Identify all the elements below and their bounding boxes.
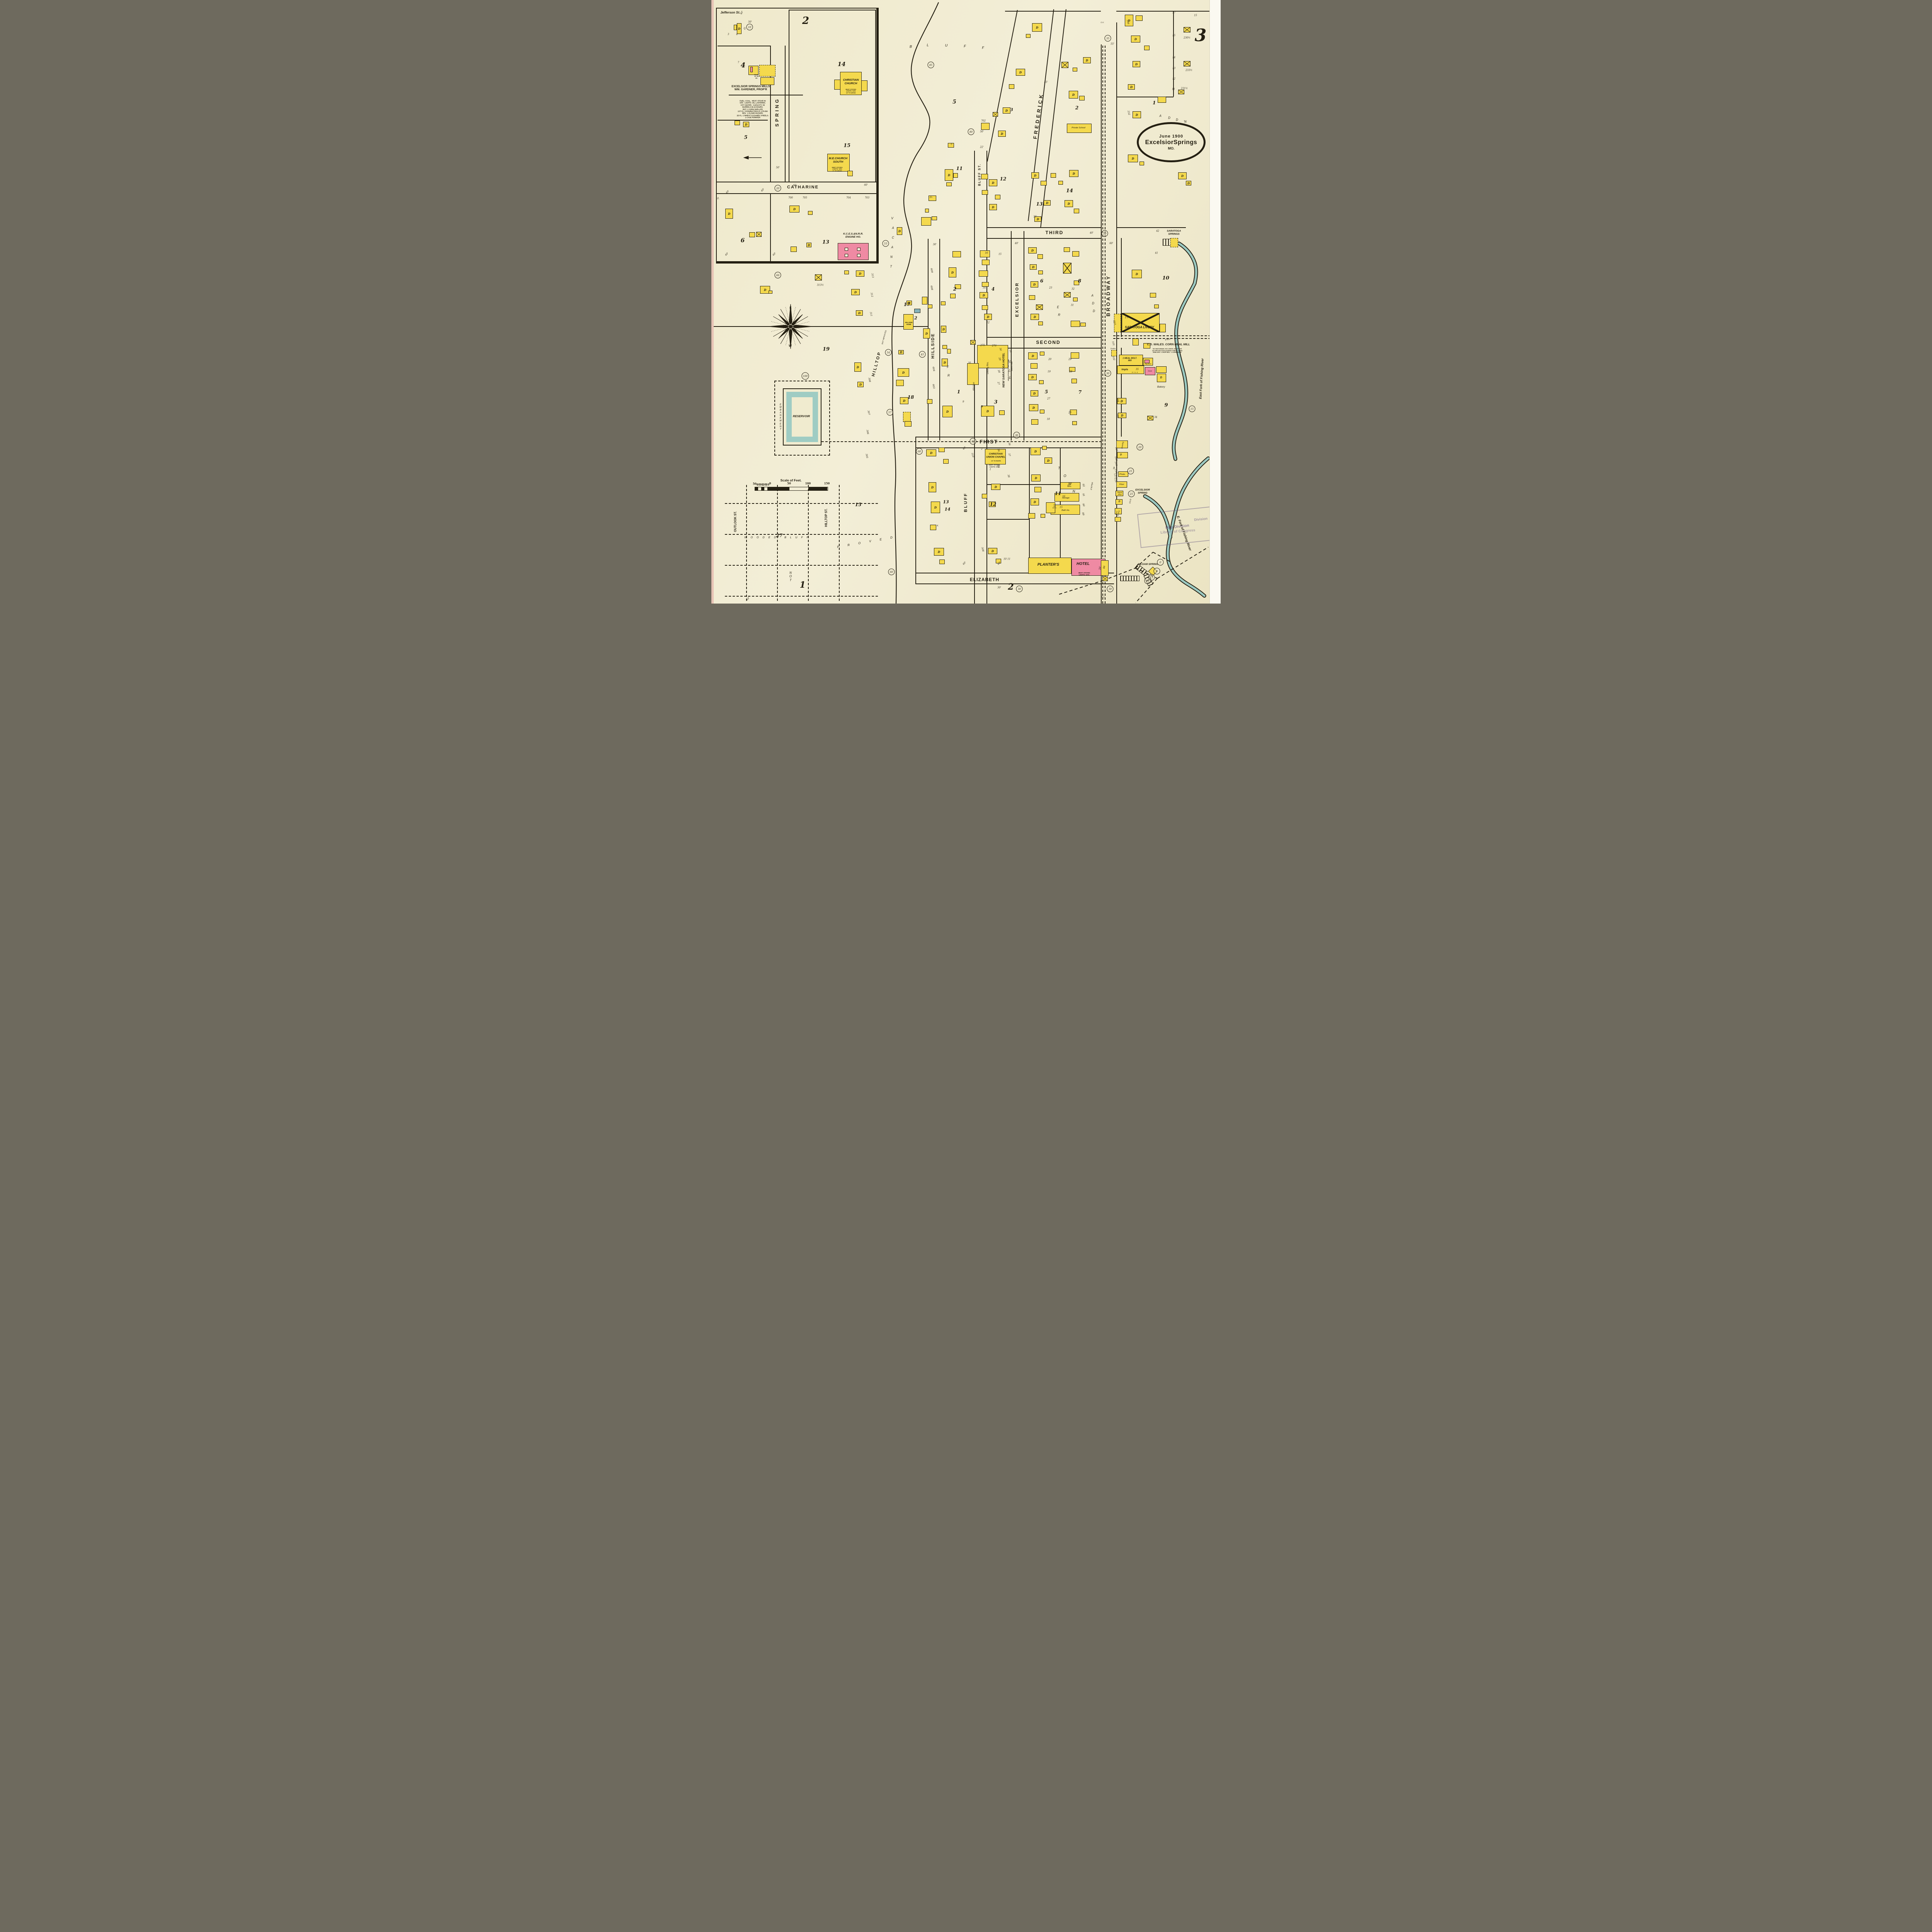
building	[1170, 238, 1178, 247]
map-label: O	[1063, 474, 1066, 478]
building: D	[988, 548, 997, 554]
street-line	[785, 46, 786, 182]
building	[1041, 514, 1045, 518]
circled-number: 0	[1157, 559, 1164, 566]
lot-number: 1½	[1125, 316, 1129, 319]
label-hotel: HOTEL	[1077, 562, 1090, 566]
building-label: D	[992, 182, 994, 184]
label-corn-meal-mill: C.D. WALES. CORN MEAL MILL	[1147, 343, 1190, 347]
building	[982, 494, 987, 498]
building-label: D	[1032, 355, 1034, 357]
label-saratoga-livery: SARATOGA LIVERY	[1125, 325, 1154, 329]
lot-number: 13	[1172, 67, 1175, 70]
building	[947, 349, 951, 354]
block-number: 11	[1055, 491, 1061, 496]
building	[1178, 90, 1184, 94]
label-engine-house: K.C.E.S.&N.R.R. ENGINE HO.	[843, 233, 863, 239]
building	[1136, 15, 1143, 21]
circled-number: 20	[1137, 444, 1143, 451]
building-label: D	[1034, 174, 1036, 177]
map-label: Bath Ho.	[1061, 509, 1070, 512]
building	[953, 173, 958, 178]
lot-number: 702	[981, 120, 986, 122]
building	[1026, 34, 1031, 38]
lot-number: 1	[990, 468, 991, 471]
block-number: 6	[741, 237, 745, 244]
building	[932, 216, 937, 220]
building	[1072, 421, 1077, 425]
street-third: THIRD	[1046, 230, 1064, 235]
lot-number: 15	[998, 253, 1002, 256]
building	[927, 399, 932, 404]
street-line	[986, 337, 1101, 338]
building	[1144, 46, 1150, 50]
label-me-church-south: M.E.CHURCH SOUTH	[829, 157, 847, 164]
building	[1115, 517, 1121, 522]
building: D	[856, 310, 863, 316]
map-label: T	[890, 265, 892, 268]
building	[1150, 293, 1156, 298]
building	[1156, 366, 1167, 373]
map-label: O.H.	[1100, 21, 1104, 23]
map-label: F	[982, 46, 984, 50]
lot-number: 705	[803, 197, 807, 199]
building-label: D	[930, 452, 932, 454]
lot-number: 17	[1172, 12, 1175, 14]
building	[995, 195, 1000, 199]
pipe-dashed-line	[783, 441, 1102, 442]
circled-number: 30	[1016, 586, 1023, 592]
map-label: O.H.	[1101, 596, 1105, 598]
map-label: D	[1168, 116, 1170, 119]
block-number: 12	[1000, 176, 1007, 182]
building	[791, 247, 797, 252]
block-number: 4	[741, 61, 746, 70]
lot-number: 15	[1060, 506, 1063, 509]
map-label: IR.CH. 30' AB RF.	[754, 74, 759, 79]
building	[905, 421, 912, 427]
pipe-dashed-line	[725, 565, 878, 566]
street-first: FIRST	[980, 439, 998, 444]
pipe-dashed-line	[839, 485, 840, 601]
lot-number: 9	[963, 401, 964, 403]
circled-number: 35	[1105, 35, 1111, 42]
pipe-dashed-line	[1105, 46, 1105, 604]
label-christian-union-chapel: CHRISTIAN UNION CHAPEL	[986, 452, 1005, 458]
building	[982, 260, 990, 265]
circled-number: 85	[928, 62, 934, 68]
building-label: D	[764, 289, 766, 291]
compass-west: W	[789, 344, 792, 347]
block-number: 13	[822, 240, 829, 245]
scale-bar	[755, 487, 828, 491]
building	[1042, 446, 1047, 450]
block-number: 8	[1078, 278, 1081, 284]
block-number: 10	[1162, 276, 1169, 281]
building	[1051, 173, 1056, 178]
building	[1031, 363, 1037, 369]
lot-number: 55'	[1111, 43, 1114, 46]
street-broadway: BROADWAY	[1105, 275, 1111, 316]
lot-number: 60'	[793, 184, 797, 187]
street-line	[716, 193, 878, 194]
lot-number: 0.	[717, 197, 719, 200]
building: D	[1083, 57, 1091, 63]
circled-number: 10	[747, 24, 753, 31]
street-line	[789, 10, 789, 182]
building: D	[1031, 447, 1041, 455]
building-label: D	[1032, 406, 1035, 409]
building	[939, 447, 945, 452]
map-label: K.	[937, 525, 939, 527]
lot-number: 50'	[776, 167, 780, 169]
lot-number: 86	[1103, 566, 1106, 569]
building-label: D	[1135, 63, 1138, 66]
building	[950, 294, 956, 298]
building	[1117, 366, 1144, 374]
building	[750, 67, 753, 72]
label-reservoir: RESERVOIR	[793, 415, 810, 418]
building-label: D	[1035, 477, 1037, 480]
building	[982, 282, 989, 287]
street-hilltop-st: HILLTOP ST.	[824, 509, 828, 527]
building	[1102, 577, 1108, 581]
map-label: Scales.	[1111, 347, 1116, 349]
building	[749, 232, 755, 237]
lot-number: 4	[736, 33, 738, 36]
block-number: 2	[1075, 105, 1078, 111]
circled-number: 80	[968, 129, 975, 135]
building: D	[923, 328, 930, 338]
block-number: 3	[1010, 107, 1013, 112]
building-label: D	[1036, 26, 1038, 29]
map-label: A	[1159, 114, 1161, 117]
street-line	[1116, 11, 1210, 12]
building: D	[1028, 352, 1037, 359]
lot-number: 14	[983, 287, 986, 289]
building-label: D	[1001, 133, 1003, 135]
building	[1071, 352, 1079, 359]
lot-number: 20	[1048, 358, 1051, 361]
building	[1038, 321, 1043, 325]
building	[844, 270, 849, 274]
building	[1037, 254, 1043, 259]
lot-number: 16	[985, 252, 988, 255]
block-number: 12	[990, 502, 997, 507]
building	[939, 560, 945, 564]
building-label: D	[944, 361, 946, 364]
building-label: D	[925, 332, 928, 335]
lot-number: 2	[981, 448, 983, 451]
lot-number: 17	[1067, 485, 1070, 487]
street-line	[1101, 44, 1102, 604]
lot-number: 35'	[1033, 216, 1037, 218]
building-label: D	[934, 506, 937, 509]
building: D	[1031, 172, 1039, 179]
block-number: 2	[953, 286, 956, 292]
scale-tick: 0	[769, 482, 771, 485]
building-label: D	[1187, 182, 1190, 185]
building	[922, 297, 927, 304]
map-label: E	[1057, 305, 1059, 309]
building-label: D	[1073, 172, 1075, 175]
north-arrow	[744, 156, 762, 159]
circled-number: 36	[1014, 432, 1020, 439]
lot-number: 700	[788, 197, 793, 199]
building-label: D	[1136, 273, 1138, 276]
building: D	[898, 368, 909, 377]
block-number: 11	[956, 166, 963, 171]
map-label: B	[910, 45, 912, 49]
building	[808, 211, 813, 215]
building-label: D	[738, 27, 740, 30]
label-new-saratoga-hotel: NEW SARATOGA HOTEL	[1002, 353, 1006, 388]
circled-number: 30	[1107, 586, 1114, 592]
building	[1073, 68, 1077, 71]
lot-number: 50'	[980, 131, 984, 133]
building	[815, 274, 822, 281]
building-label: D	[942, 328, 945, 331]
map-label: R	[947, 374, 950, 377]
street-line	[939, 239, 940, 440]
building	[1147, 416, 1153, 420]
street-jefferson: Jefferson St.	[720, 10, 740, 14]
scale-tick: 100	[805, 482, 811, 485]
lot-number: 32	[1071, 288, 1075, 291]
building: D	[991, 484, 1000, 490]
street-spring: SPRING	[774, 97, 780, 127]
map-label: TUB FOR BATHS	[1053, 504, 1056, 509]
building-label: D	[987, 316, 989, 318]
pipe-dashed-line	[777, 485, 778, 601]
building	[914, 309, 920, 313]
street-line	[716, 8, 717, 262]
building	[1039, 380, 1044, 384]
block-number: 7	[1078, 389, 1082, 395]
building	[1034, 487, 1041, 492]
building	[967, 363, 979, 385]
map-label: 13' TO EAVES.	[991, 460, 1001, 462]
lot-number: 31	[1071, 304, 1074, 307]
title-date: June 1900	[1159, 134, 1183, 139]
building-label: D	[1034, 450, 1037, 453]
street-hillside: HILLSIDE	[931, 333, 936, 359]
map-label: HEAT: STOVES. LIGHTS: GAS. 17' TO EAVES.	[832, 167, 843, 172]
scale-tick: 50	[787, 482, 791, 485]
building-label: D	[745, 123, 747, 126]
map-label: D'r.	[930, 197, 932, 199]
building-label: D	[1046, 202, 1048, 204]
street-bluff-st: BLUFF ST.	[978, 163, 981, 186]
building-label: D	[938, 551, 940, 553]
building: D	[981, 406, 994, 417]
street-line	[718, 120, 768, 121]
map-label: A	[1091, 294, 1093, 297]
street-excelsior: EXCELSIOR	[1015, 282, 1020, 317]
building	[970, 340, 976, 345]
building-label: D	[1031, 376, 1034, 379]
block-number: 9	[1164, 403, 1168, 408]
block-number: 18	[908, 395, 914, 400]
pipe-dashed-line	[808, 485, 809, 601]
street-line	[1173, 11, 1174, 97]
lot-number: 12	[986, 321, 990, 324]
building: D	[1133, 111, 1141, 118]
building	[845, 248, 848, 251]
building: D	[1178, 172, 1187, 179]
building-label: D	[983, 294, 985, 297]
building-label: D	[1068, 202, 1070, 205]
street-outlook: OUTLOOK ST.	[733, 511, 737, 532]
building: D	[743, 122, 749, 127]
lot-number: 29	[1068, 358, 1071, 361]
building: D	[1132, 270, 1142, 278]
label-planters: PLANTER'S	[1037, 563, 1059, 567]
building	[993, 112, 998, 117]
building	[1061, 62, 1068, 68]
map-label: C.	[951, 144, 953, 146]
building-label: D	[898, 230, 901, 233]
building: D	[1028, 247, 1037, 253]
building	[982, 305, 988, 310]
building	[1079, 96, 1085, 100]
circled-number: 66	[775, 272, 781, 279]
building-label: D	[1034, 316, 1036, 318]
building-label: D	[793, 208, 796, 211]
building	[1133, 338, 1139, 345]
building	[1080, 323, 1086, 327]
pipe-dashed-line	[746, 485, 747, 601]
building	[1038, 270, 1043, 274]
building: D	[1031, 390, 1038, 396]
label-embankment: E M B A N K M E N T	[780, 404, 782, 431]
building: D	[789, 206, 799, 213]
building: D	[1128, 84, 1135, 90]
street-line	[876, 8, 879, 264]
building-label: D	[1019, 71, 1022, 74]
street-line	[1029, 447, 1030, 573]
building: D	[998, 131, 1006, 137]
building-label: D	[728, 213, 730, 215]
block-number: 9	[981, 405, 983, 408]
building	[1040, 410, 1044, 413]
building-label: D	[1034, 501, 1036, 503]
building: D	[851, 289, 860, 295]
building	[999, 410, 1005, 415]
block-number: 5	[744, 135, 747, 141]
lot-number: 60'	[864, 184, 868, 187]
map-label: D	[1120, 454, 1122, 456]
label-bakery: Bakery	[1157, 386, 1165, 389]
building: D	[1030, 264, 1037, 270]
building-label: D	[854, 291, 857, 294]
building: D	[1028, 374, 1037, 380]
street-line	[915, 583, 1114, 584]
building	[930, 525, 936, 530]
block-number: 6	[1040, 278, 1043, 284]
building	[1154, 304, 1159, 308]
building-label: D	[1005, 109, 1008, 112]
map-label: C	[892, 236, 894, 239]
label-mills-note: FUEL: COAL. HEAT: STOVE IN OFF. LIGHTS: …	[737, 100, 769, 119]
map-label: HEAT: STOVES LIGHTS: GAS.	[1078, 572, 1090, 576]
block-number: 1	[957, 389, 960, 395]
building	[928, 304, 932, 308]
map-label: Flour	[1119, 483, 1124, 486]
building: D	[725, 209, 733, 219]
building	[921, 217, 931, 226]
building: D	[1003, 107, 1010, 114]
building: D	[1069, 170, 1078, 177]
building-label: D	[1032, 266, 1034, 269]
map-label: F	[964, 44, 966, 49]
street-line	[986, 519, 1029, 520]
lot-number: 703	[865, 197, 869, 199]
building: D	[1044, 200, 1051, 206]
railroad-bridge-hatch	[1120, 576, 1139, 581]
building: D	[1065, 200, 1073, 207]
building: D	[1016, 69, 1025, 76]
map-label: N O T	[789, 571, 792, 582]
building-label: D	[951, 271, 954, 274]
building-label: D	[808, 244, 810, 247]
map-label: Repair Shop	[1117, 492, 1122, 496]
street-elizabeth: ELIZABETH	[970, 577, 999, 582]
building	[1184, 27, 1190, 32]
map-label: A	[892, 226, 894, 230]
block-number: 1	[799, 580, 805, 590]
lot-number: 28	[1069, 371, 1072, 373]
lot-number: 15	[1194, 14, 1197, 17]
building-label: D	[859, 272, 861, 275]
map-label: 'N	[1184, 120, 1186, 123]
map-label: V	[891, 216, 893, 220]
map-label: LIGHTS: GAS	[1011, 362, 1013, 371]
lot-number: 11	[1172, 88, 1175, 91]
building: D	[857, 382, 864, 387]
building	[1064, 292, 1071, 298]
building: D	[989, 179, 997, 186]
building	[1073, 298, 1078, 301]
building	[1063, 263, 1071, 274]
building: D	[942, 406, 952, 417]
building-label: D	[986, 410, 989, 413]
building: D	[1031, 498, 1039, 505]
building	[896, 380, 904, 386]
building-label: D	[1047, 459, 1049, 462]
building-label: D	[859, 383, 862, 386]
lot-number: 30'	[997, 587, 1001, 589]
building-label: D	[995, 486, 997, 488]
street-line	[928, 239, 929, 440]
lot-number: 34	[1154, 416, 1157, 419]
building	[1117, 452, 1128, 458]
pipe-dashed-line	[1102, 46, 1103, 604]
building-label: D	[1037, 218, 1039, 221]
map-label: Impls	[1122, 368, 1128, 371]
compass-east: E	[789, 306, 791, 310]
building-label: D	[948, 174, 950, 177]
lot-number: 275	[980, 344, 985, 347]
building: D	[1031, 281, 1038, 287]
map-label: 1 MEAL BOLT. Mill	[1122, 357, 1137, 362]
block-number: 5	[1045, 389, 1048, 395]
building: D	[1186, 181, 1191, 185]
building	[1074, 209, 1079, 213]
block-number: 14	[944, 507, 950, 512]
building-label: D	[1033, 283, 1036, 286]
building	[1058, 181, 1063, 185]
